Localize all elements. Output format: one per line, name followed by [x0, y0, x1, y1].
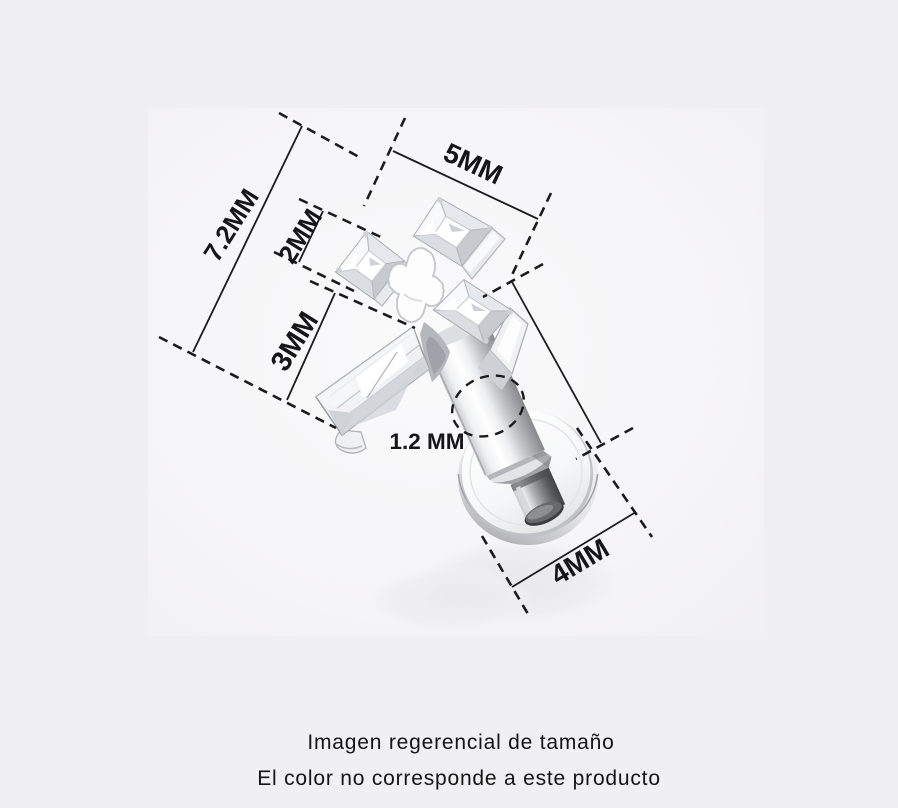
svg-text:1.2 MM: 1.2 MM — [389, 429, 464, 454]
svg-text:El color no corresponde a este: El color no corresponde a este producto — [257, 767, 661, 790]
svg-text:Imagen regerencial de tamaño: Imagen regerencial de tamaño — [307, 731, 614, 754]
